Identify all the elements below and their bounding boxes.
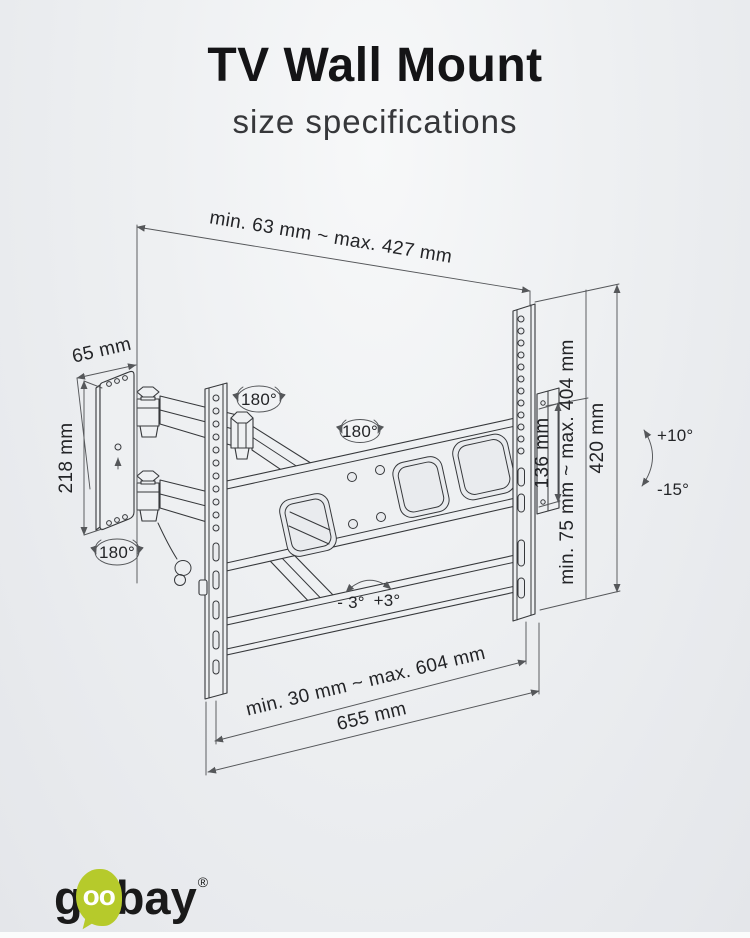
- wall-plate-face: [100, 371, 134, 529]
- plate-screw-hole: [123, 376, 128, 381]
- label-rail-plate-height: 136 mm: [532, 417, 553, 488]
- plate-center-hole: [115, 444, 121, 450]
- plate-screw-hole: [123, 515, 128, 520]
- label-plate-depth: 65 mm: [70, 334, 133, 368]
- upper-elbow-pivot: [231, 412, 253, 459]
- vesa-hole: [348, 473, 357, 482]
- label-level-plus: +3°: [374, 591, 401, 610]
- plate-bottom-hinge: [137, 471, 159, 521]
- label-swivel-arm: 180°: [241, 390, 277, 409]
- wall-mount-diagram: min. 63 mm ~ max. 427 mm 65 mm 218 mm 13…: [0, 0, 750, 938]
- logo-letters-oo: oo: [83, 880, 115, 912]
- tilt-arc: [642, 430, 653, 486]
- label-tilt-down: -15°: [657, 480, 689, 499]
- label-swivel-bracket: 180°: [342, 422, 378, 441]
- plate-screw-hole: [115, 379, 120, 384]
- plate-screw-hole: [107, 382, 112, 387]
- label-bracket-width: 655 mm: [335, 698, 409, 735]
- left-rail-body: [205, 383, 227, 699]
- label-vesa-vertical: min. 75 mm ~ max. 404 mm: [557, 339, 578, 585]
- vesa-hole: [377, 513, 386, 522]
- registered-trademark-icon: ®: [198, 874, 208, 890]
- wall-plate-side-face: [96, 385, 100, 530]
- label-swivel-plate: 180°: [99, 543, 135, 562]
- beam-cutout-3: [450, 432, 517, 503]
- rail-latch-clip: [199, 580, 207, 595]
- plate-screw-hole: [107, 521, 112, 526]
- plate-screw-hole: [115, 518, 120, 523]
- page: TV Wall Mount size specifications: [0, 0, 750, 938]
- logo-speech-bubble-icon: oo: [76, 869, 122, 926]
- label-bracket-height: 420 mm: [587, 402, 608, 473]
- label-plate-height: 218 mm: [56, 422, 77, 493]
- logo-letters-bay: bay: [116, 874, 197, 921]
- plate-top-hinge: [137, 387, 159, 437]
- label-tilt-up: +10°: [657, 426, 693, 445]
- safety-pull-ring: [158, 523, 191, 586]
- vesa-hole: [349, 520, 358, 529]
- label-level-minus: - 3°: [337, 593, 364, 612]
- goobay-logo: g oo bay ®: [54, 866, 207, 928]
- bottom-strip: [0, 932, 750, 938]
- vesa-hole: [376, 466, 385, 475]
